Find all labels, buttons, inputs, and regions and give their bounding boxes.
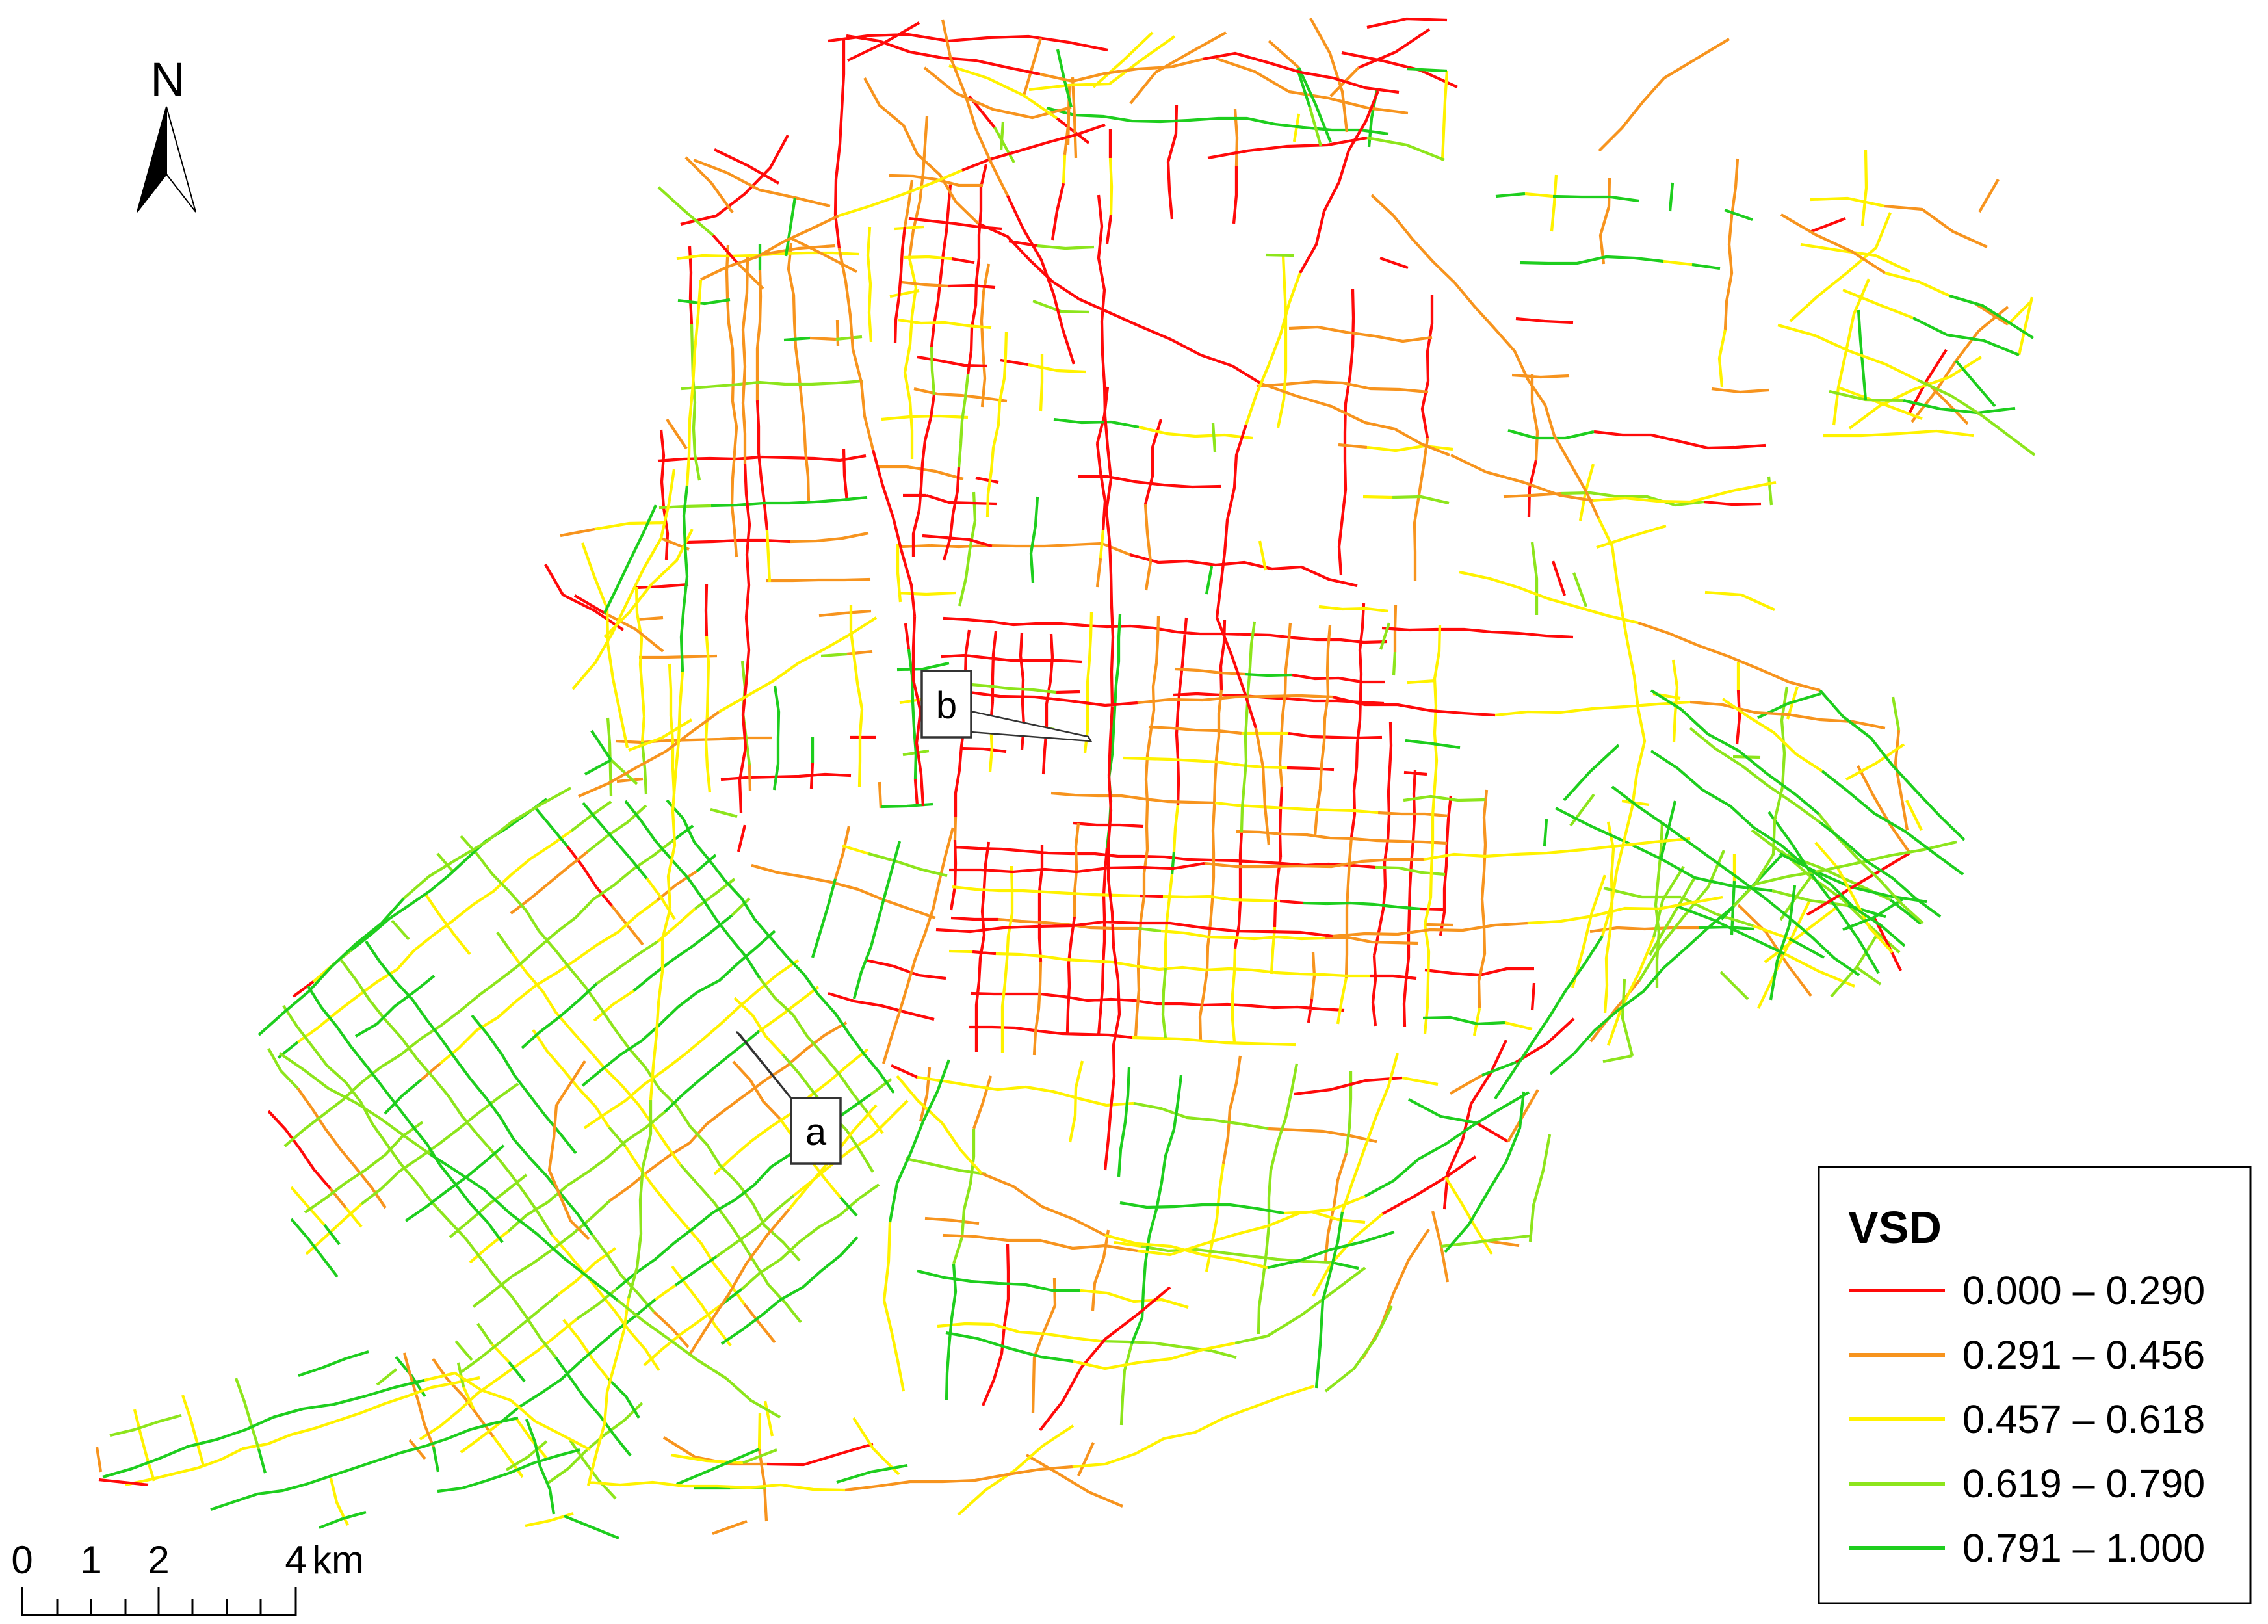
svg-text:1: 1: [80, 1538, 101, 1582]
svg-text:0: 0: [11, 1538, 33, 1582]
svg-text:0.000 – 0.290: 0.000 – 0.290: [1962, 1268, 2205, 1313]
svg-text:4: 4: [285, 1538, 306, 1582]
svg-text:a: a: [805, 1111, 827, 1153]
svg-text:N: N: [150, 53, 185, 107]
svg-text:b: b: [936, 685, 957, 727]
svg-text:0.619 – 0.790: 0.619 – 0.790: [1962, 1461, 2205, 1506]
svg-text:2: 2: [148, 1538, 169, 1582]
svg-text:km: km: [312, 1538, 364, 1582]
svg-text:0.291 – 0.456: 0.291 – 0.456: [1962, 1333, 2205, 1377]
svg-text:0.457 – 0.618: 0.457 – 0.618: [1962, 1397, 2205, 1441]
svg-text:VSD: VSD: [1848, 1202, 1942, 1253]
svg-text:0.791 – 1.000: 0.791 – 1.000: [1962, 1526, 2205, 1570]
